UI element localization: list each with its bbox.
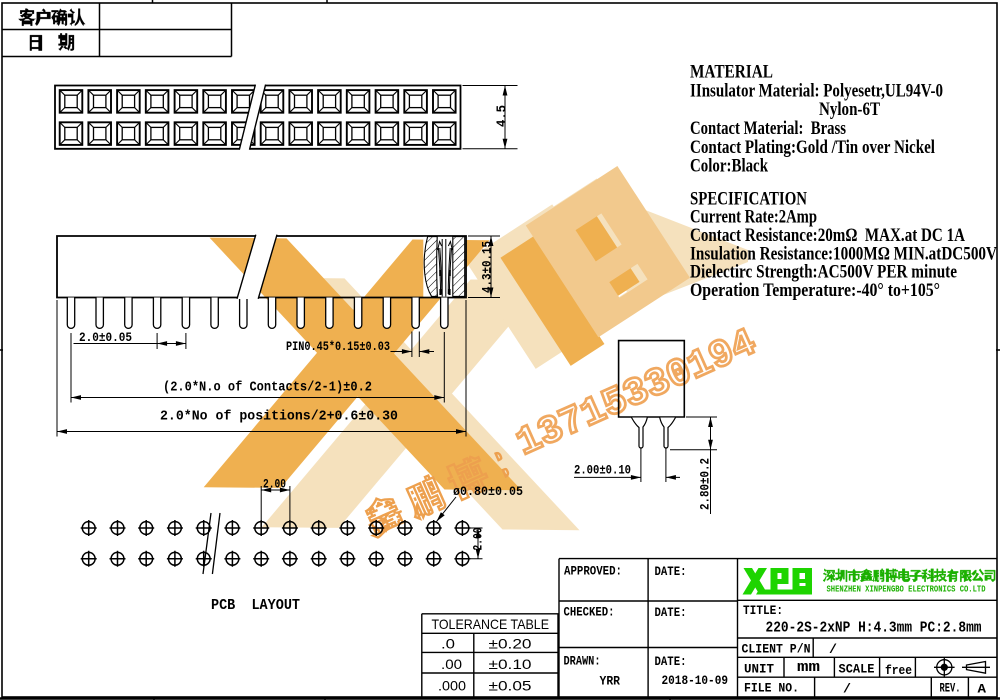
svg-text:.0: .0 — [441, 636, 455, 652]
svg-text:Nylon-6T: Nylon-6T — [819, 99, 880, 120]
svg-text:ø0.80±0.05: ø0.80±0.05 — [453, 484, 523, 499]
svg-text:2.00: 2.00 — [263, 477, 286, 492]
svg-text:/: / — [829, 642, 837, 657]
svg-text:MATERIAL: MATERIAL — [690, 62, 773, 83]
svg-text:REV.: REV. — [940, 681, 961, 696]
svg-text:2018-10-09: 2018-10-09 — [662, 673, 729, 688]
svg-text:A: A — [978, 682, 987, 697]
svg-text:CHECKED:: CHECKED: — [564, 605, 615, 620]
svg-text:±0.10: ±0.10 — [489, 656, 532, 672]
svg-text:/: / — [843, 682, 851, 697]
svg-text:.000: .000 — [438, 678, 466, 694]
svg-text:FILE NO.: FILE NO. — [744, 681, 799, 696]
svg-text:4.3±0.15: 4.3±0.15 — [480, 241, 495, 293]
svg-text:220-2S-2xNP H:4.3mm PC:2.8mm: 220-2S-2xNP H:4.3mm PC:2.8mm — [766, 620, 982, 637]
svg-text:±0.20: ±0.20 — [489, 636, 532, 652]
svg-text:IInsulator Material: Polyesetr: IInsulator Material: Polyesetr,UL94V-0 — [690, 81, 943, 102]
svg-text:TOLERANCE TABLE: TOLERANCE TABLE — [432, 616, 550, 632]
svg-text:SCALE: SCALE — [839, 662, 875, 677]
svg-text:APPROVED:: APPROVED: — [564, 564, 622, 579]
svg-text:Color:Black: Color:Black — [690, 156, 768, 177]
svg-text:DATE:: DATE: — [655, 564, 687, 579]
svg-text:CLIENT P/N: CLIENT P/N — [742, 642, 811, 657]
svg-text:YRR: YRR — [600, 674, 621, 689]
svg-text:SHENZHEN XINPENGBO ELECTRONICS: SHENZHEN XINPENGBO ELECTRONICS CO.LTD — [827, 584, 986, 595]
svg-text:mm: mm — [797, 659, 820, 676]
svg-text:±0.05: ±0.05 — [489, 678, 532, 694]
svg-text:Contact Material: Brass: Contact Material: Brass — [690, 118, 846, 139]
svg-text:Operation Temperature:-40° to+: Operation Temperature:-40° to+105° — [690, 280, 940, 301]
svg-text:2.0±0.05: 2.0±0.05 — [79, 330, 132, 345]
svg-text:UNIT: UNIT — [744, 662, 774, 677]
svg-text:4.5: 4.5 — [496, 105, 511, 127]
svg-text:DATE:: DATE: — [655, 654, 687, 669]
svg-text:.00: .00 — [441, 656, 462, 672]
svg-text:2.80±0.2: 2.80±0.2 — [698, 458, 713, 510]
svg-text:free: free — [885, 663, 912, 678]
svg-text:2.00: 2.00 — [471, 527, 486, 550]
svg-text:DRAWN:: DRAWN: — [564, 654, 601, 669]
svg-text:2.0*No of positions/2+0.6±0.30: 2.0*No of positions/2+0.6±0.30 — [160, 410, 398, 425]
svg-text:(2.0*N.o of Contacts/2-1)±0.2: (2.0*N.o of Contacts/2-1)±0.2 — [163, 381, 372, 396]
svg-text:PIN0.45*0.15±0.03: PIN0.45*0.15±0.03 — [286, 339, 390, 354]
svg-text:PCB LAYOUT: PCB LAYOUT — [211, 598, 300, 614]
svg-text:2.00±0.10: 2.00±0.10 — [574, 463, 631, 478]
svg-text:DATE:: DATE: — [655, 605, 687, 620]
svg-text:TITLE:: TITLE: — [743, 603, 783, 618]
